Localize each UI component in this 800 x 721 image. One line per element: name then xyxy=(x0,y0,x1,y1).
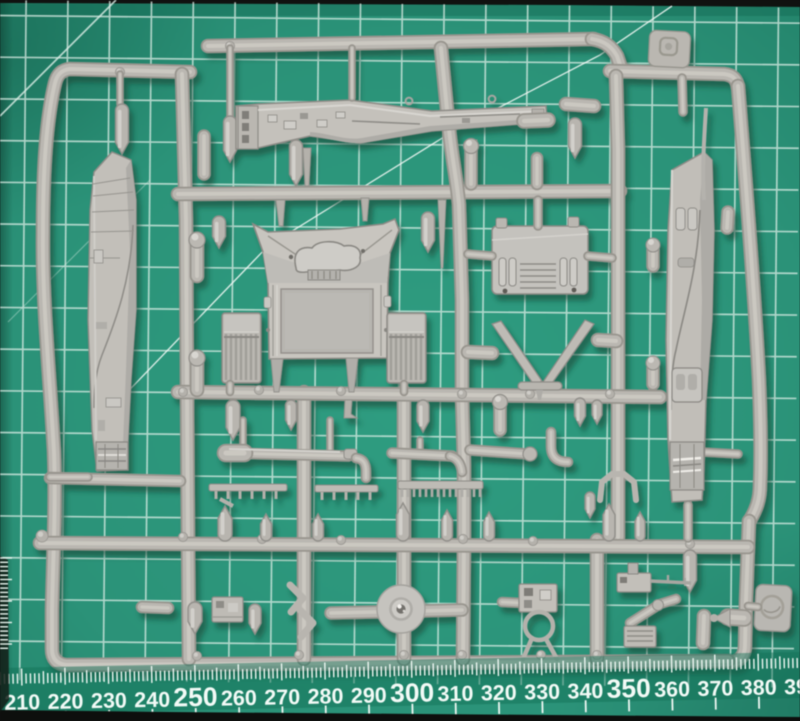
svg-text:250: 250 xyxy=(173,682,218,713)
svg-text:330: 330 xyxy=(524,680,560,705)
svg-text:220: 220 xyxy=(47,689,83,714)
svg-text:340: 340 xyxy=(567,679,603,704)
svg-text:320: 320 xyxy=(481,681,517,706)
svg-text:270: 270 xyxy=(264,685,300,710)
svg-text:310: 310 xyxy=(437,682,473,707)
svg-text:370: 370 xyxy=(697,676,733,701)
svg-text:360: 360 xyxy=(654,677,690,702)
svg-text:350: 350 xyxy=(606,673,651,704)
svg-text:390: 390 xyxy=(784,675,800,700)
svg-text:380: 380 xyxy=(741,675,777,700)
svg-text:260: 260 xyxy=(221,686,257,711)
svg-text:300: 300 xyxy=(390,677,435,708)
svg-text:280: 280 xyxy=(307,684,343,709)
svg-text:240: 240 xyxy=(134,688,170,713)
svg-text:290: 290 xyxy=(351,683,387,708)
svg-text:230: 230 xyxy=(91,688,127,713)
